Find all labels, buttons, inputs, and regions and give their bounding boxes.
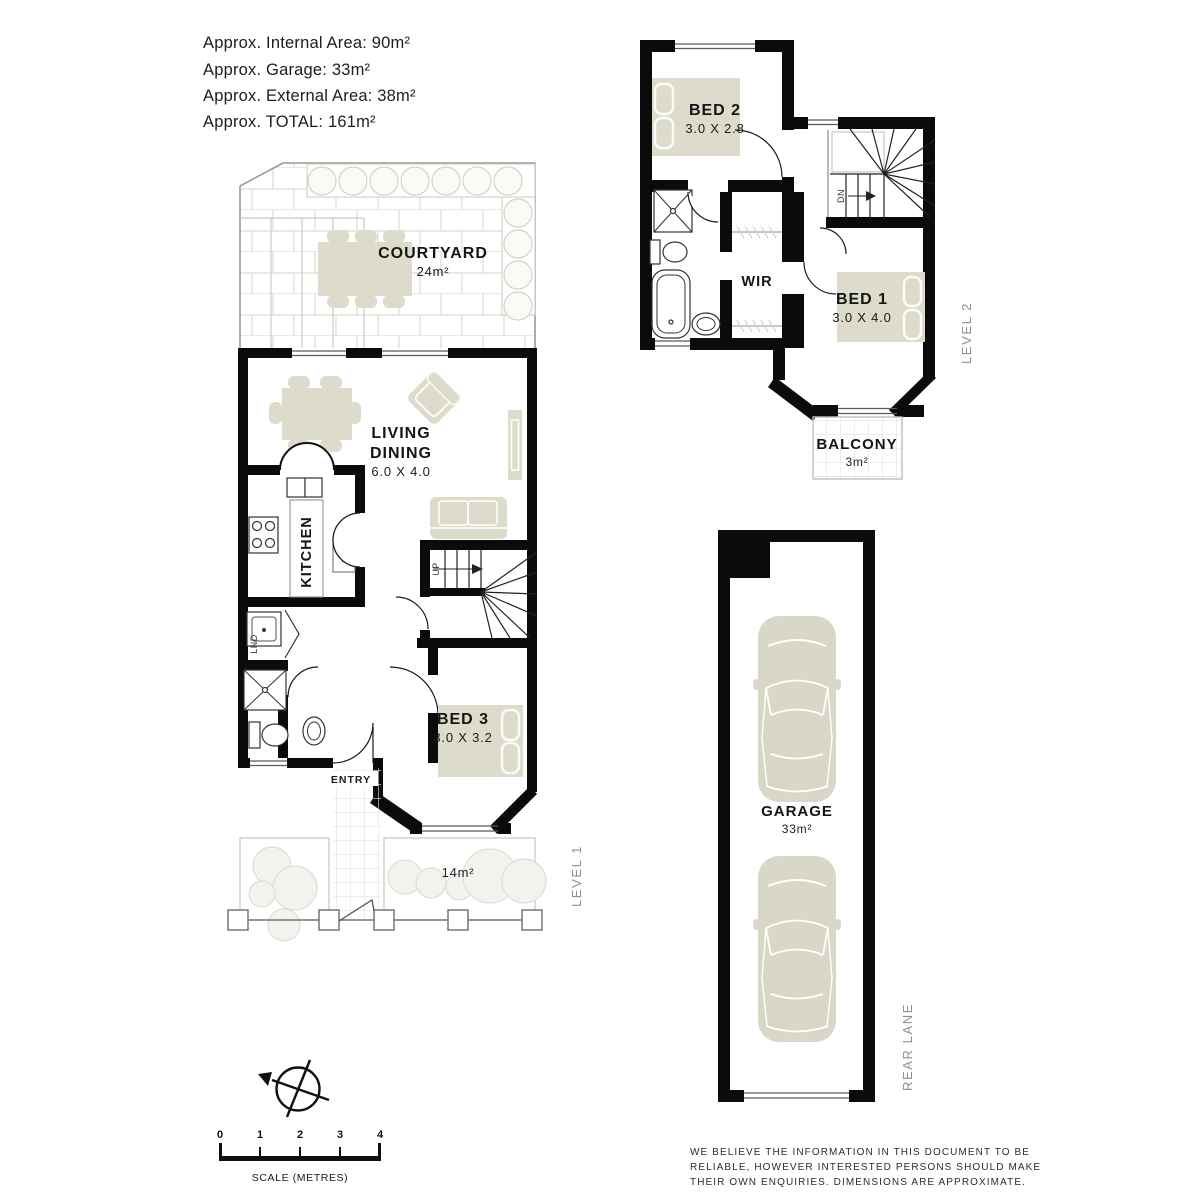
courtyard: COURTYARD 24m² [240, 163, 535, 348]
bed2-pillow-1 [655, 84, 673, 114]
bed2-room: BED 2 3.0 X 2.8 [652, 78, 782, 177]
bathroom-door-arc [288, 667, 318, 697]
bed1-room: BED 1 3.0 X 4.0 [804, 262, 925, 342]
garage-door-lines [744, 1093, 849, 1098]
scale-mid-ticks [260, 1147, 340, 1156]
courtyard-label: COURTYARD [378, 245, 488, 262]
bed3-room: BED 3 3.0 X 3.2 [390, 667, 523, 777]
bed3-pillow-1 [502, 710, 519, 740]
scale-tick-3: 3 [337, 1129, 343, 1141]
compass [258, 1060, 329, 1117]
scale-bar: 0 1 2 3 4 SCALE (METRES) [217, 1129, 384, 1184]
bed1-label: BED 1 [836, 291, 888, 308]
level1-label: LEVEL 1 [569, 845, 584, 907]
scale-tick-1: 1 [257, 1129, 263, 1141]
frontyard-area-label: 14m² [442, 865, 475, 880]
stove [249, 517, 278, 553]
car-1 [753, 616, 841, 802]
balcony-label: BALCONY [816, 436, 897, 453]
disclaimer-line-1: WE BELIEVE THE INFORMATION IN THIS DOCUM… [690, 1147, 1030, 1158]
balcony-area: 3m² [845, 455, 868, 469]
garage-notch [718, 530, 770, 578]
disclaimer-line-2: RELIABLE, HOWEVER INTERESTED PERSONS SHO… [690, 1162, 1041, 1173]
up-label: UP [431, 562, 441, 576]
planter-right [502, 197, 535, 320]
kitchen-label: KITCHEN [299, 516, 315, 587]
kitchen-sink [287, 478, 305, 497]
balcony: BALCONY 3m² [813, 417, 902, 479]
scale-tick-4: 4 [377, 1129, 384, 1141]
front-yard: 14m² [228, 838, 546, 941]
bed1-pillow-1 [904, 277, 921, 306]
living-label-1: LIVING [371, 425, 430, 442]
bathroom-level1 [244, 667, 325, 748]
sofa [430, 497, 507, 539]
scale-tick-2: 2 [297, 1129, 303, 1141]
disclaimer: WE BELIEVE THE INFORMATION IN THIS DOCUM… [690, 1147, 1041, 1188]
kitchen-sink-2 [305, 478, 322, 497]
bifold-door [285, 610, 299, 658]
toilet-tank [249, 722, 260, 748]
living-dims: 6.0 X 4.0 [371, 464, 430, 479]
bed2-label: BED 2 [689, 102, 741, 119]
bed1-pillow-2 [904, 310, 921, 339]
wir: WIR [732, 226, 782, 332]
bed1-door-arc [804, 262, 836, 294]
floorplan-page: Approx. Internal Area: 90m² Approx. Gara… [0, 0, 1200, 1200]
front-door-arc [333, 723, 373, 763]
entry-label: ENTRY [331, 774, 371, 786]
laundry: LND [247, 610, 299, 658]
garage-label: GARAGE [761, 803, 833, 820]
scale-caption: SCALE (METRES) [252, 1172, 349, 1184]
bed3-dims: 3.0 X 3.2 [433, 730, 492, 745]
header-internal-area: Approx. Internal Area: 90m² [203, 34, 410, 52]
bed2-dims: 3.0 X 2.8 [685, 121, 744, 136]
floorplan-svg: Approx. Internal Area: 90m² Approx. Gara… [0, 0, 1200, 1200]
header-garage-area: Approx. Garage: 33m² [203, 61, 371, 79]
laundry-label: LND [249, 634, 259, 654]
toilet-bowl [262, 724, 288, 746]
bed2-pillow-2 [655, 118, 673, 148]
kitchen: DW KITCHEN LND [247, 443, 360, 658]
dn-label: DN [836, 189, 846, 203]
bathroom-level2 [650, 190, 720, 338]
disclaimer-line-3: THEIR OWN ENQUIRIES. DIMENSIONS ARE APPR… [690, 1177, 1026, 1188]
header-stats: Approx. Internal Area: 90m² Approx. Gara… [203, 34, 416, 131]
garage-area: 33m² [782, 822, 813, 836]
bed2-door-arc [735, 130, 782, 177]
bed3-label: BED 3 [437, 711, 489, 728]
garage: GARAGE 33m² [718, 530, 875, 1102]
toilet-tank-l2 [650, 240, 660, 264]
rear-lane-label: REAR LANE [900, 1003, 915, 1091]
living-label-2: DINING [370, 445, 432, 462]
scale-tick-0: 0 [217, 1129, 223, 1141]
entry: ENTRY [324, 723, 381, 920]
header-total-area: Approx. TOTAL: 161m² [203, 113, 376, 131]
planter-top [307, 164, 535, 197]
scale-bar-line [219, 1156, 381, 1161]
courtyard-area: 24m² [417, 264, 450, 279]
armchair [406, 370, 463, 427]
car-2 [753, 856, 841, 1042]
header-external-area: Approx. External Area: 38m² [203, 87, 416, 105]
bed3-pillow-2 [502, 743, 519, 773]
level2-label: LEVEL 2 [959, 302, 974, 364]
dining-table [269, 376, 361, 452]
toilet-bowl-l2 [663, 242, 687, 262]
entry-path-tiles [333, 768, 381, 920]
bed1-dims: 3.0 X 4.0 [832, 310, 891, 325]
tv-unit [508, 410, 522, 480]
outdoor-table [318, 230, 412, 308]
compass-north-arrow-icon [258, 1072, 272, 1086]
wir-label: WIR [741, 274, 772, 290]
